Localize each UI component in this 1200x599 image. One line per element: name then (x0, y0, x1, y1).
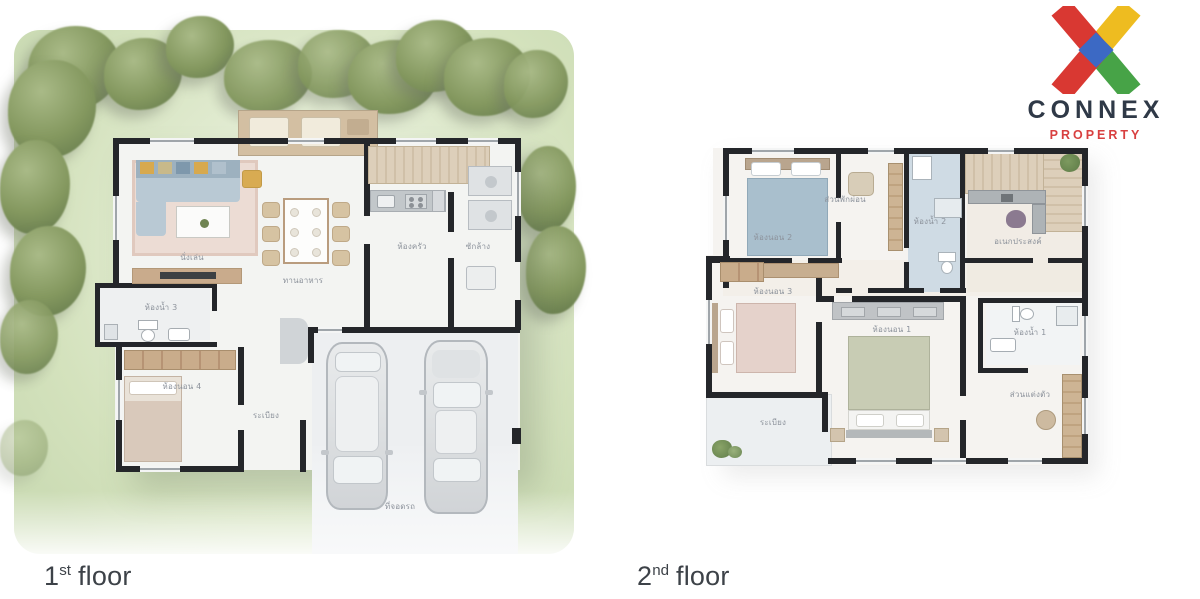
car-mirror (321, 450, 329, 455)
room-label-living: นั่งเล่น (180, 254, 203, 262)
armchair (242, 170, 262, 188)
wall (960, 296, 966, 396)
burner (418, 203, 423, 208)
dressing-chair (1036, 410, 1056, 430)
room-label-multipurpose: อเนกประสงค์ (994, 238, 1042, 246)
window (1082, 316, 1088, 356)
pillow (791, 162, 821, 176)
pillow (720, 341, 734, 365)
wall (816, 322, 822, 398)
terrace-door (288, 138, 324, 144)
garage-door-gap (318, 327, 342, 333)
room-label-lounge: ส่วนพักผ่อน (824, 196, 866, 204)
bed (745, 158, 830, 258)
washer-door (485, 176, 497, 188)
burner (409, 203, 414, 208)
pillow (176, 162, 190, 174)
window (150, 138, 194, 144)
wall (904, 148, 909, 248)
room-label-bathroom2: ห้องน้ำ 2 (914, 218, 947, 226)
floor2-caption-ordinal: nd (652, 562, 669, 579)
toilet-bowl (1020, 308, 1034, 320)
sink-counter (934, 198, 962, 218)
wall (212, 283, 217, 311)
plate (290, 208, 299, 217)
armchair (848, 172, 874, 196)
entry-door-panel (280, 318, 308, 364)
floor1-caption-ordinal: st (59, 562, 71, 579)
wall (836, 222, 841, 262)
pillow (140, 162, 154, 174)
wall (300, 420, 306, 472)
car-roof (435, 410, 477, 454)
toilet (1012, 306, 1020, 322)
pillow (720, 309, 734, 333)
plant (728, 446, 742, 458)
window (868, 148, 894, 154)
shower (1056, 306, 1078, 326)
plate (312, 228, 321, 237)
window (988, 148, 1014, 154)
desk-chair (1006, 210, 1026, 228)
wall (940, 288, 966, 293)
wall (308, 327, 314, 363)
laptop (1001, 194, 1013, 202)
wall (822, 392, 828, 432)
sofa-seat (136, 178, 240, 202)
blanket (848, 336, 930, 410)
room-label-bedroom4: ห้องนอน 4 (163, 383, 202, 391)
plate (290, 228, 299, 237)
window (396, 138, 436, 144)
wall (978, 298, 983, 372)
room-label-bedroom2: ห้องนอน 2 (754, 234, 793, 242)
wall (904, 288, 924, 293)
coffee-table (176, 206, 230, 238)
floor1-caption-number: 1 (44, 561, 59, 591)
window (1082, 398, 1088, 434)
room-label-kitchen: ห้องครัว (397, 243, 426, 251)
window (932, 458, 966, 464)
terrace-deck (238, 110, 378, 156)
room-label-bedroom1: ห้องนอน 1 (873, 326, 912, 334)
headboard (846, 430, 932, 438)
tv-console (132, 268, 242, 284)
wall (238, 430, 244, 472)
sofa-chaise (136, 202, 166, 236)
wall (448, 258, 454, 330)
dining-chair (332, 226, 350, 242)
floor2-caption: 2ndfloor (637, 561, 730, 592)
plate (312, 208, 321, 217)
side-table (347, 119, 369, 135)
window (856, 458, 896, 464)
wardrobe (832, 302, 944, 320)
window (1008, 458, 1042, 464)
pillow (194, 162, 208, 174)
window (723, 196, 729, 240)
pillow (212, 162, 226, 174)
sink (168, 328, 190, 341)
shower (912, 156, 932, 180)
logo-name: CONNEX (1008, 96, 1184, 125)
floor1-plan: นั่งเล่น ทานอาหาร ห้องครัว ซักล้าง ห้องน… (0, 0, 600, 599)
toilet-bowl (141, 329, 155, 342)
stove (405, 194, 427, 209)
wall (706, 392, 822, 398)
desk-return (1032, 204, 1046, 234)
sink (377, 195, 395, 208)
car-hood (432, 350, 480, 378)
floor1-caption: 1stfloor (44, 561, 132, 592)
sink (990, 338, 1016, 352)
car-windshield (333, 456, 383, 484)
wardrobe-box (913, 307, 937, 317)
room-label-carport: ที่จอดรถ (385, 503, 415, 511)
blanket (747, 178, 828, 256)
blanket (736, 303, 796, 373)
bench (888, 163, 903, 251)
wall (364, 244, 370, 333)
room-label-bathroom1: ห้องน้ำ 1 (1014, 329, 1047, 337)
wall (960, 148, 965, 293)
wardrobe-box (841, 307, 865, 317)
plant (200, 219, 209, 228)
wall (868, 288, 906, 293)
window (140, 466, 180, 472)
room-label-balcony: ระเบียง (760, 419, 786, 427)
nightstand (830, 428, 845, 442)
car-roof (335, 376, 379, 452)
nightstand (934, 428, 949, 442)
car-rear-window (335, 352, 381, 372)
desk (968, 190, 1046, 204)
dryer-door (485, 210, 497, 222)
wall (238, 347, 244, 405)
burner (409, 197, 414, 202)
wall (978, 368, 1028, 373)
dining-chair (332, 202, 350, 218)
wall (512, 428, 521, 444)
connex-logo: CONNEX PROPERTY (1008, 6, 1184, 142)
dining-chair (262, 226, 280, 242)
window (468, 138, 498, 144)
car-mirror (485, 390, 493, 395)
tree (526, 226, 586, 314)
laundry-sink (466, 266, 496, 290)
shower (104, 324, 118, 340)
dining-chair (262, 250, 280, 266)
washer (468, 166, 512, 196)
dining-table (283, 198, 329, 264)
plate (312, 248, 321, 257)
floor2-caption-word: floor (676, 561, 730, 591)
floorplan-image: นั่งเล่น ทานอาหาร ห้องครัว ซักล้าง ห้องน… (0, 0, 1200, 599)
bed (848, 336, 930, 436)
bed (712, 303, 796, 373)
wall (448, 192, 454, 232)
wardrobe-box (877, 307, 901, 317)
pillow (896, 414, 924, 427)
wall (836, 148, 841, 198)
wall (960, 420, 966, 460)
dining-chair (332, 250, 350, 266)
closet (1062, 374, 1082, 458)
car-windshield (433, 382, 481, 408)
logo-subtitle: PROPERTY (1008, 128, 1184, 142)
window (1082, 186, 1088, 226)
floor2-caption-number: 2 (637, 561, 652, 591)
pillow (751, 162, 781, 176)
room-label-dining: ทานอาหาร (283, 277, 323, 285)
connex-x-icon (1048, 6, 1144, 94)
plate (290, 248, 299, 257)
wall (515, 300, 521, 330)
dryer (468, 200, 512, 230)
wall (836, 288, 852, 293)
window (113, 196, 119, 240)
burner (418, 197, 423, 202)
room-label-walkway: ระเบียง (253, 412, 279, 420)
wall (963, 258, 1033, 263)
toilet-bowl (941, 261, 953, 274)
headboard (712, 303, 718, 373)
dining-chair (262, 202, 280, 218)
floor1-caption-word: floor (78, 561, 132, 591)
wall (95, 342, 217, 347)
blanket (125, 401, 181, 461)
car-mirror (419, 390, 427, 395)
car (326, 342, 388, 510)
window (752, 148, 794, 154)
refrigerator (432, 190, 445, 212)
pillow (856, 414, 884, 427)
room-label-bathroom3: ห้องน้ำ 3 (145, 304, 178, 312)
car-mirror (385, 450, 393, 455)
sofa (136, 160, 240, 178)
car (424, 340, 488, 514)
room-label-dressing: ส่วนแต่งตัว (1010, 391, 1050, 399)
pillow (158, 162, 172, 174)
wardrobe (124, 350, 236, 370)
window (116, 380, 122, 420)
car-rear-window (433, 458, 481, 482)
tv (160, 272, 216, 279)
room-label-bedroom3: ห้องนอน 3 (754, 288, 793, 296)
room-label-laundry: ซักล้าง (466, 243, 491, 251)
closet (720, 262, 764, 282)
window (515, 172, 521, 216)
